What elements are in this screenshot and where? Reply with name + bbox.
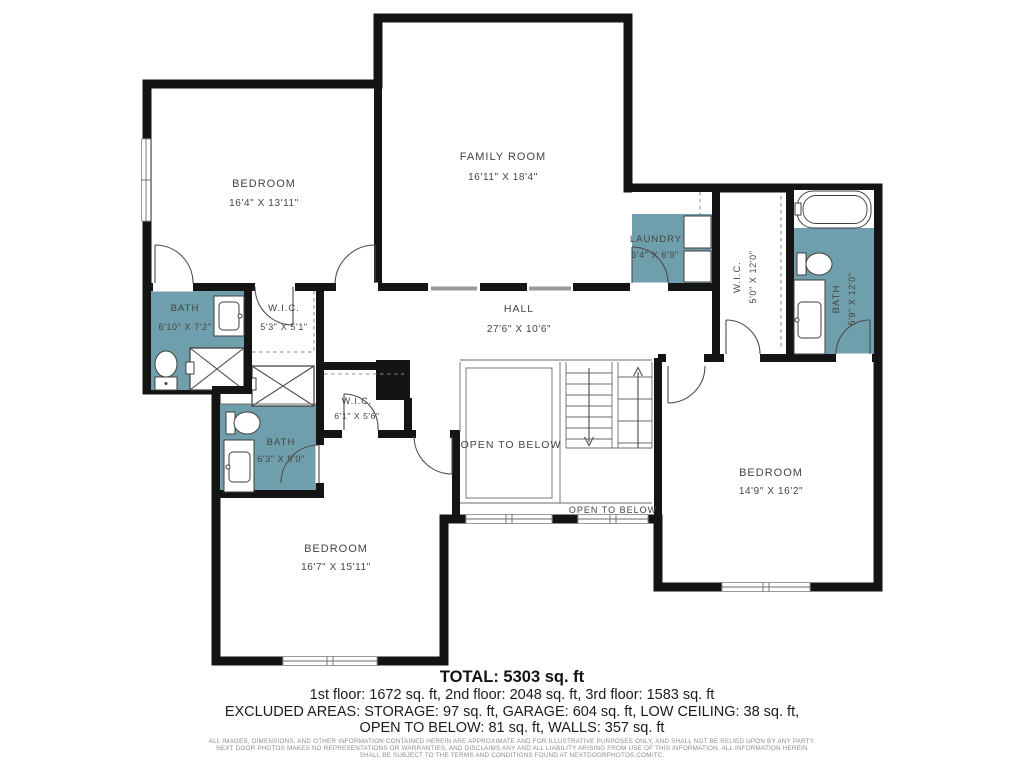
sink-icon (798, 302, 821, 338)
window-icon (578, 515, 648, 524)
dryer-icon (684, 251, 711, 282)
floor-plan-page: BEDROOM 16'4" X 13'11" FAMILY ROOM 16'11… (0, 0, 1024, 768)
open-to-below-outline (460, 360, 652, 503)
room-label: HALL (504, 303, 534, 315)
room-label: W.I.C. (732, 261, 743, 293)
summary-floors: 1st floor: 1672 sq. ft, 2nd floor: 2048 … (310, 687, 715, 703)
room-dims: 6'3" X 9'0" (257, 454, 304, 464)
disclaimer-line-2: NEXT DOOR PHOTOS MAKES NO REPRESENTATION… (216, 745, 808, 752)
room-label: BEDROOM (304, 543, 368, 555)
window-icon (283, 657, 377, 666)
room-dims: 5'9" X 12'0" (847, 272, 857, 325)
room-label: BATH (171, 303, 200, 314)
shower-left-icon (186, 348, 244, 390)
room-dims: 6'10" X 7'2" (158, 322, 211, 332)
toilet-icon (155, 351, 177, 377)
sink-icon (219, 302, 239, 330)
room-dims: 6'1" X 5'6" (334, 411, 379, 421)
faucet-icon (795, 203, 801, 215)
faucet-icon (238, 314, 242, 318)
room-dims: 16'7" X 15'11" (301, 562, 371, 573)
room-label: BATH (831, 285, 842, 314)
cased-opening-icon (431, 287, 477, 291)
room-dims: 5'0" X 12'0" (748, 250, 758, 303)
room-label: FAMILY ROOM (460, 151, 546, 163)
summary-excluded-2: OPEN TO BELOW: 81 sq. ft, WALLS: 357 sq.… (360, 720, 665, 736)
room-label: W.I.C. (342, 396, 373, 406)
washer-icon (684, 216, 711, 248)
room-label: BEDROOM (739, 467, 803, 479)
room-label: LAUNDRY (630, 234, 682, 245)
room-label: BEDROOM (232, 178, 296, 190)
summary-excluded-1: EXCLUDED AREAS: STORAGE: 97 sq. ft, GARA… (225, 704, 799, 720)
floor-plan: BEDROOM 16'4" X 13'11" FAMILY ROOM 16'11… (0, 0, 1024, 768)
room-dims: 16'4" X 13'11" (229, 198, 299, 209)
room-dims: 14'9" X 16'2" (739, 486, 803, 497)
open-to-below-small-label: OPEN TO BELOW (569, 505, 657, 515)
building-outline (147, 18, 878, 661)
wall-block (376, 360, 410, 400)
open-to-below-label: OPEN TO BELOW (461, 439, 562, 451)
window-icon (142, 139, 151, 221)
faucet-icon (226, 465, 230, 469)
toilet-icon (797, 253, 806, 275)
summary-total: TOTAL: 5303 sq. ft (440, 668, 585, 686)
room-dims: 27'6" X 10'6" (487, 324, 551, 335)
room-dims: 16'11" X 18'4" (468, 172, 538, 183)
room-dims: 6'4" X 6'9" (631, 250, 678, 260)
room-dims: 5'3" X 5'1" (260, 322, 307, 332)
shower-middle-icon (248, 366, 314, 406)
cased-opening-icon (529, 287, 571, 291)
disclaimer-line-1: ALL IMAGES, DIMENSIONS, AND OTHER INFORM… (209, 738, 816, 745)
stairs (566, 362, 652, 448)
room-label: BATH (267, 437, 296, 448)
window-icon (466, 515, 552, 524)
window-icon (722, 583, 810, 592)
sink-icon (229, 452, 250, 482)
disclaimer-line-3: SHALL BE SUBJECT TO THE TERMS AND CONDIT… (360, 752, 665, 759)
room-label: W.I.C. (268, 303, 300, 314)
